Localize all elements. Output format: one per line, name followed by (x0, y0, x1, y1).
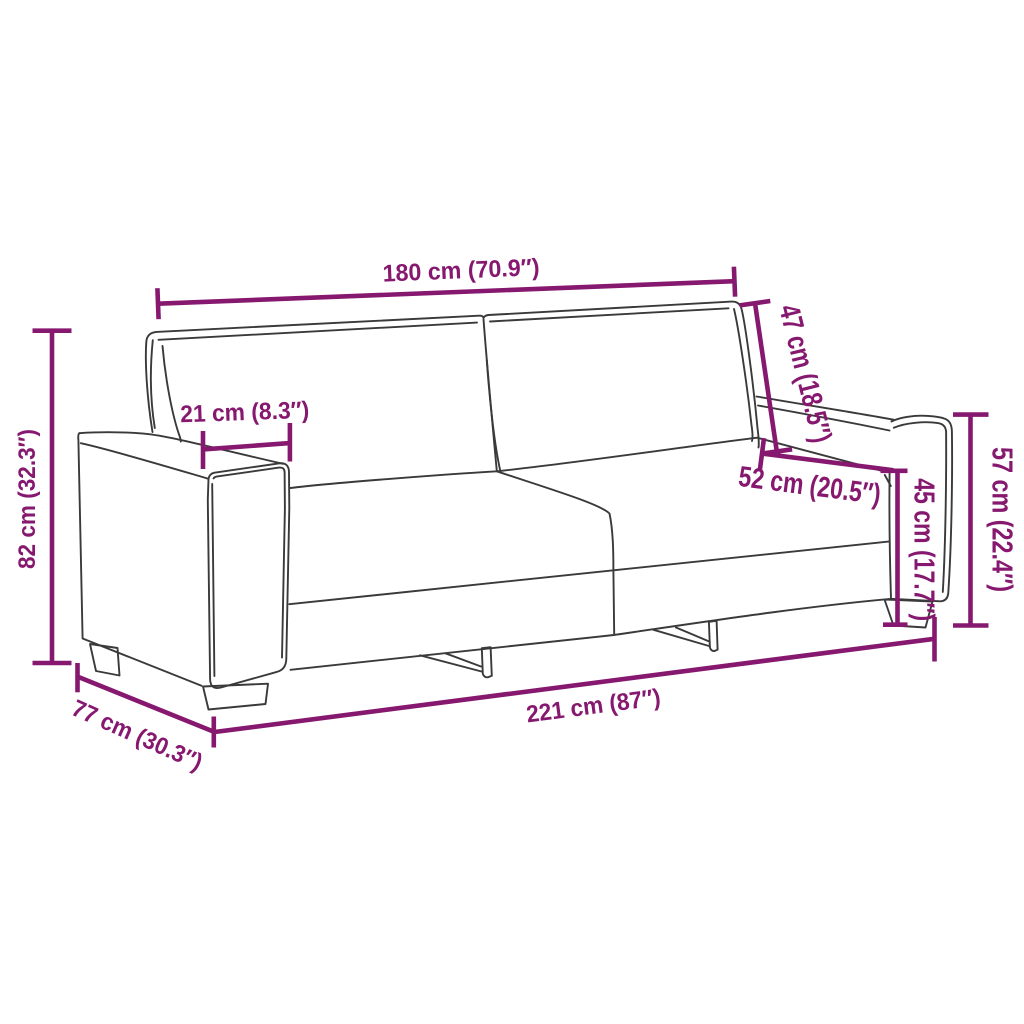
svg-text:82 cm (32.3″): 82 cm (32.3″) (14, 429, 41, 569)
svg-text:45 cm (17.7″): 45 cm (17.7″) (907, 478, 939, 621)
svg-text:21 cm (8.3″): 21 cm (8.3″) (180, 397, 310, 428)
svg-text:57 cm (22.4″): 57 cm (22.4″) (986, 447, 1018, 592)
